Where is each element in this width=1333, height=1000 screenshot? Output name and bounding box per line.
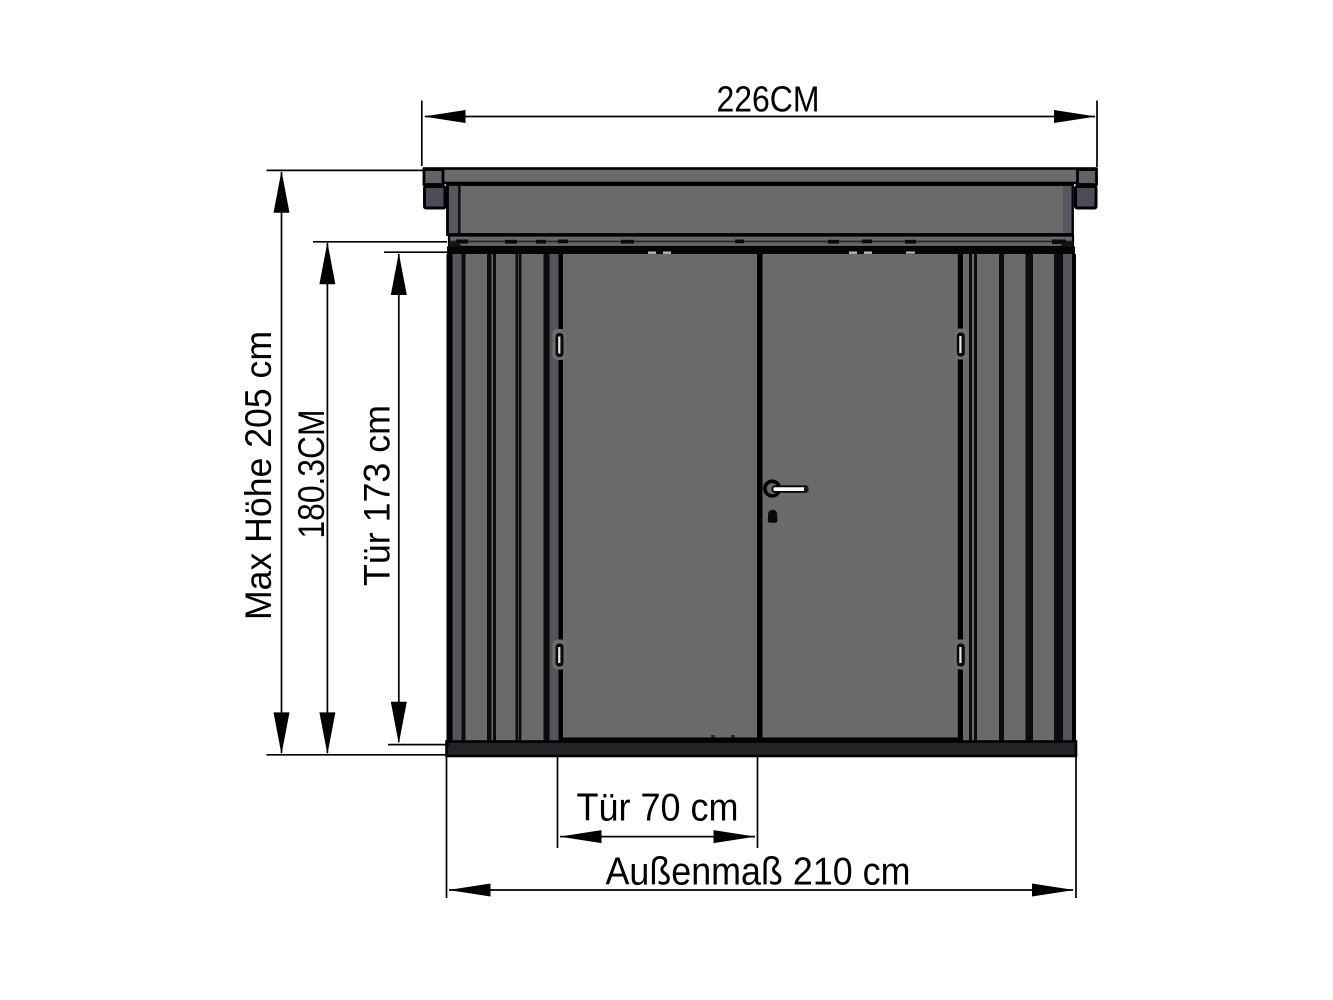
svg-text:180.3CM: 180.3CM [291, 410, 332, 539]
svg-text:Max Höhe 205 cm: Max Höhe 205 cm [238, 331, 279, 620]
svg-text:Tür 173 cm: Tür 173 cm [357, 405, 398, 586]
svg-text:Außenmaß 210 cm: Außenmaß 210 cm [606, 851, 911, 894]
svg-text:Tür 70 cm: Tür 70 cm [577, 787, 739, 830]
svg-text:226CM: 226CM [717, 79, 820, 120]
